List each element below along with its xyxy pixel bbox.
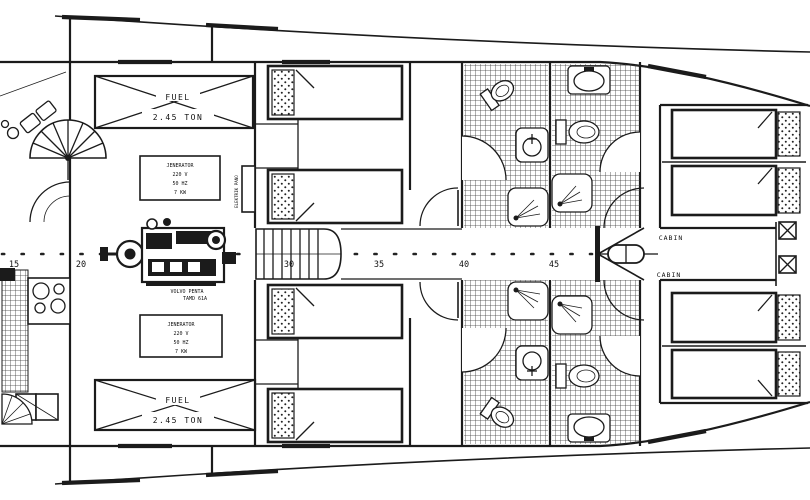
yacht-deck-plan-drawing: FUEL 2.45 TON FUEL 2.45 TON JENERATOR 22… [0,0,810,500]
toilet-icon [556,364,599,388]
bathroom-top-left [462,64,548,228]
fuel-tank-bottom: FUEL 2.45 TON [95,380,255,430]
midship-cabin-upper [268,66,402,223]
generator-box-bottom: JENERATOR 220 V 50 HZ 7 KW [140,315,222,357]
aft-salon-galley [0,72,106,424]
generator-bottom-line3: 50 HZ [173,340,188,346]
pillow [272,393,294,438]
central-staircase [256,229,341,279]
electric-panel: ELEKTRIK PANO [234,166,255,212]
toilet-icon [556,120,599,144]
sink-icon [568,66,610,94]
pillow [272,70,294,115]
galley-counter [2,270,28,392]
bow-hatch-icon [779,256,796,273]
fuel-tank-bottom-capacity: 2.45 TON [153,416,204,425]
engine-make-label: VOLVO PENTA [170,289,203,295]
ruler-label: 40 [459,260,469,270]
engine-room: FUEL 2.45 TON FUEL 2.45 TON JENERATOR 22… [95,76,255,430]
shower-icon [508,188,548,226]
generator-bottom-line2: 220 V [173,331,188,337]
berth [672,110,776,158]
generator-top-line1: JENERATOR [166,163,194,169]
shower-icon [508,282,548,320]
berth [672,293,776,342]
generator-top-line3: 50 HZ [172,181,187,187]
engine-model-label: TAMD 61A [183,296,207,302]
bow-hatch-icon [779,222,796,239]
shower-icon [552,296,592,334]
cabin-label-upper: CABIN [659,234,684,242]
ruler-label: 20 [76,260,86,270]
pillow [778,352,800,396]
door-arc [30,182,70,222]
mast-and-windlass [595,226,658,282]
ruler-station-numbers: 15 20 30 35 40 45 [9,260,559,270]
pillow [778,168,800,213]
ruler-label: 35 [374,260,384,270]
fuel-tank-top: FUEL 2.45 TON [95,76,253,128]
ruler-label: 30 [284,260,294,270]
berth [672,166,776,215]
sink-icon [516,128,548,162]
ruler-label: 15 [9,260,19,270]
fuel-tank-top-label: FUEL [165,93,190,102]
bathroom-top-right [552,64,640,228]
sink-basin-icon [8,128,19,139]
cabin-label-lower: CABIN [657,271,682,279]
generator-bottom-line4: 7 KW [175,349,188,355]
berth [672,350,776,398]
generator-top-line2: 220 V [172,172,187,178]
sink-icon [568,414,610,442]
electric-panel-label: ELEKTRIK PANO [234,175,239,208]
ruler-label: 45 [549,260,559,270]
pillow [272,174,294,219]
deck-plan-page: FUEL 2.45 TON FUEL 2.45 TON JENERATOR 22… [0,0,810,500]
pillow [778,112,800,156]
pillow [778,295,800,340]
pillow [272,289,294,334]
fuel-tank-top-capacity: 2.45 TON [153,113,204,122]
sink-basin-icon [2,121,9,128]
generator-box-top: JENERATOR 220 V 50 HZ 7 KW [140,156,220,200]
generator-top-line4: 7 KW [174,190,187,196]
stove-icon [28,278,70,324]
bathroom-bottom-left [462,280,548,444]
sink-icon [516,346,548,380]
bathroom-bottom-right [552,280,640,444]
main-engine-icon: VOLVO PENTA TAMD 61A [100,218,236,302]
generator-bottom-line1: JENERATOR [167,322,195,328]
midship-cabin-lower [268,285,402,442]
shower-icon [552,174,592,212]
fuel-tank-bottom-label: FUEL [165,396,190,405]
